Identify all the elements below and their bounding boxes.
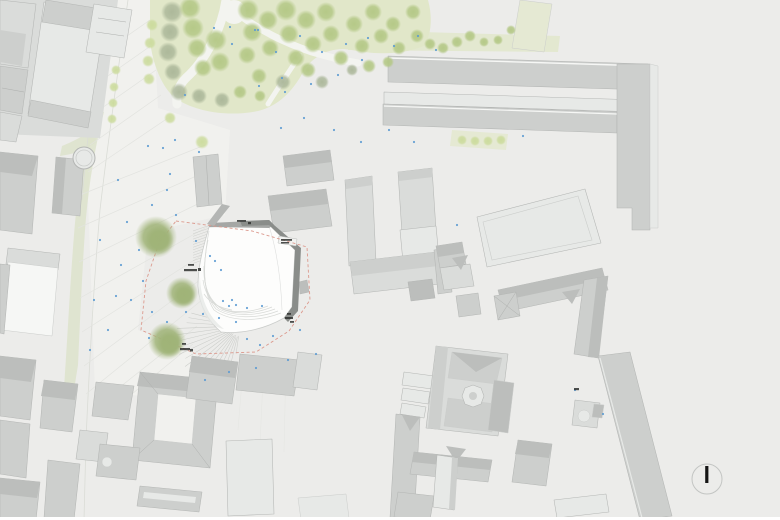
micro-label-mark (237, 220, 246, 222)
micro-label-mark (281, 242, 289, 244)
north-arrow-icon (692, 464, 722, 494)
micro-label-mark (182, 343, 186, 345)
micro-label-mark (287, 313, 291, 315)
micro-label-mark (188, 264, 194, 266)
micro-label-mark (290, 321, 294, 323)
fountain (73, 147, 95, 169)
micro-label-mark (190, 349, 193, 352)
micro-label-mark (281, 239, 292, 241)
micro-label-mark (184, 269, 197, 271)
micro-label-mark (248, 222, 251, 224)
site-plan-canvas (0, 0, 780, 520)
micro-label-mark (574, 388, 579, 390)
micro-label-mark (285, 317, 293, 319)
micro-label-mark (180, 348, 190, 350)
micro-label-mark (198, 268, 201, 271)
site-plan-image (0, 0, 780, 520)
